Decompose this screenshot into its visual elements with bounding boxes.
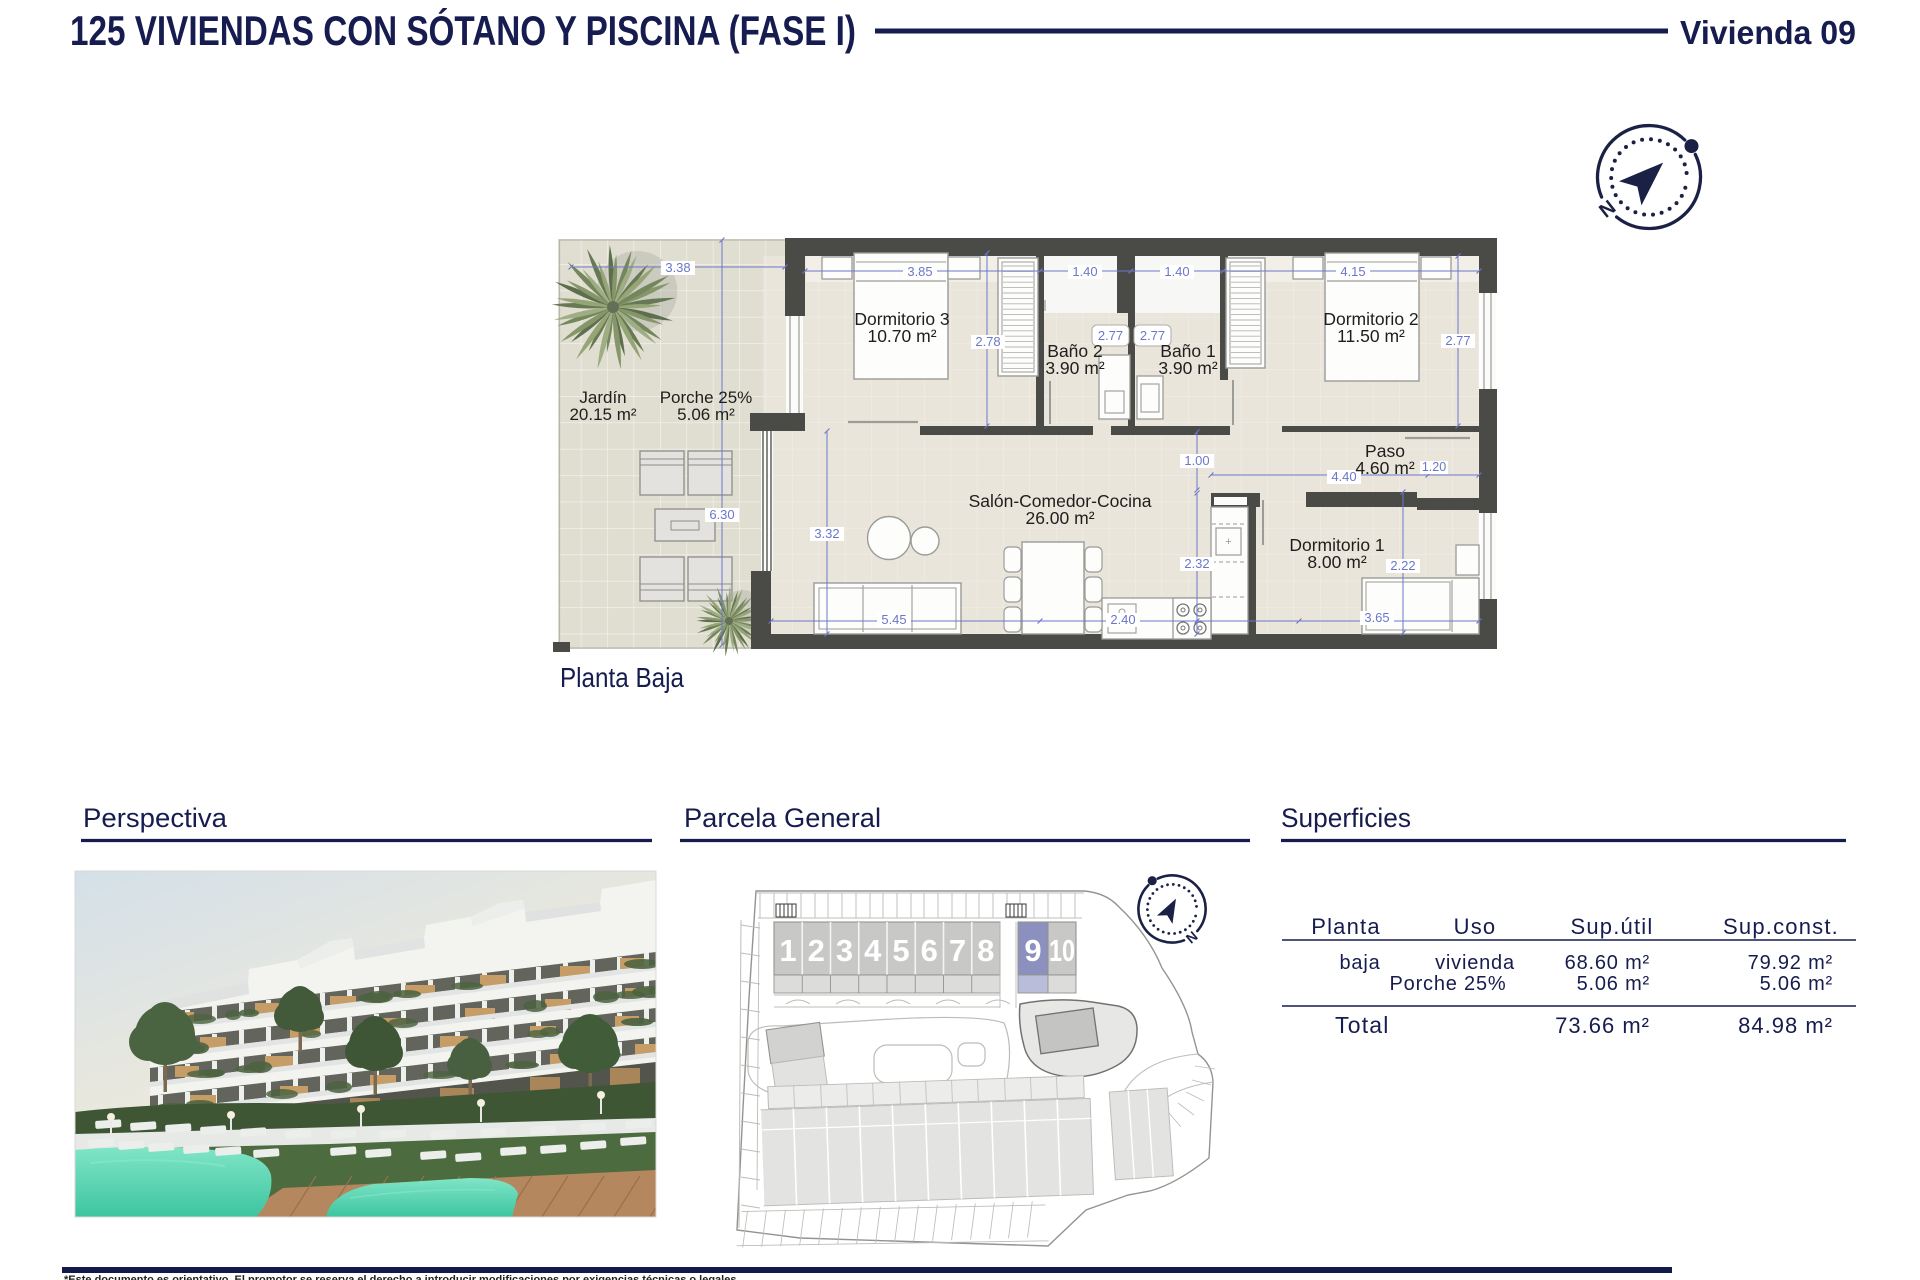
svg-text:Sup.const.: Sup.const. — [1723, 914, 1839, 939]
svg-text:Porche 25%: Porche 25% — [1390, 973, 1507, 995]
svg-text:Superficies: Superficies — [1281, 803, 1411, 833]
svg-text:2: 2 — [808, 933, 825, 968]
svg-text:2.77: 2.77 — [1445, 333, 1470, 348]
svg-text:1: 1 — [779, 933, 796, 968]
svg-text:10.70 m²: 10.70 m² — [867, 326, 936, 346]
svg-text:10: 10 — [1049, 933, 1075, 968]
svg-text:79.92 m²: 79.92 m² — [1748, 952, 1833, 974]
svg-text:+: + — [1225, 536, 1231, 548]
svg-text:3: 3 — [836, 933, 853, 968]
svg-text:84.98 m²: 84.98 m² — [1738, 1013, 1833, 1038]
svg-text:4.15: 4.15 — [1340, 264, 1365, 279]
svg-text:Planta Baja: Planta Baja — [560, 662, 684, 693]
svg-text:Uso: Uso — [1454, 914, 1497, 939]
svg-text:*Este documento es orientativo: *Este documento es orientativo. El promo… — [64, 1274, 736, 1280]
svg-text:7: 7 — [949, 933, 966, 968]
svg-text:1.20: 1.20 — [1422, 460, 1446, 474]
svg-text:Planta: Planta — [1311, 914, 1381, 939]
svg-text:9: 9 — [1024, 933, 1041, 968]
svg-text:4.60 m²: 4.60 m² — [1355, 458, 1414, 478]
svg-text:3.32: 3.32 — [814, 526, 839, 541]
svg-text:1.40: 1.40 — [1164, 264, 1189, 279]
svg-text:1.40: 1.40 — [1072, 264, 1097, 279]
svg-text:8.00 m²: 8.00 m² — [1307, 552, 1366, 572]
svg-text:2.40: 2.40 — [1110, 612, 1135, 627]
svg-text:2.78: 2.78 — [975, 334, 1000, 349]
svg-text:5.45: 5.45 — [881, 612, 906, 627]
svg-text:vivienda: vivienda — [1435, 952, 1515, 974]
svg-text:3.90 m²: 3.90 m² — [1158, 358, 1217, 378]
svg-text:11.50 m²: 11.50 m² — [1337, 326, 1405, 346]
svg-text:5.06 m²: 5.06 m² — [1577, 973, 1650, 995]
svg-text:baja: baja — [1339, 952, 1380, 974]
svg-text:Vivienda 09: Vivienda 09 — [1680, 14, 1856, 51]
svg-text:2.32: 2.32 — [1184, 556, 1209, 571]
svg-text:73.66 m²: 73.66 m² — [1555, 1013, 1650, 1038]
svg-text:Perspectiva: Perspectiva — [83, 803, 228, 833]
svg-text:68.60 m²: 68.60 m² — [1565, 952, 1650, 974]
svg-text:5: 5 — [892, 933, 909, 968]
svg-text:5.06 m²: 5.06 m² — [677, 405, 735, 424]
svg-text:3.85: 3.85 — [907, 264, 932, 279]
svg-text:4: 4 — [864, 933, 882, 968]
svg-text:3.65: 3.65 — [1364, 610, 1389, 625]
svg-text:Total: Total — [1335, 1012, 1390, 1038]
svg-text:5.06 m²: 5.06 m² — [1760, 973, 1833, 995]
svg-text:2.22: 2.22 — [1390, 558, 1415, 573]
svg-text:3.38: 3.38 — [665, 260, 690, 275]
svg-text:6.30: 6.30 — [709, 507, 734, 522]
svg-text:4.40: 4.40 — [1331, 469, 1356, 484]
svg-text:Parcela General: Parcela General — [684, 803, 881, 833]
svg-text:8: 8 — [977, 933, 994, 968]
svg-text:26.00 m²: 26.00 m² — [1025, 508, 1094, 528]
svg-text:20.15 m²: 20.15 m² — [569, 405, 636, 424]
svg-text:3.90 m²: 3.90 m² — [1045, 358, 1104, 378]
svg-text:1.00: 1.00 — [1184, 453, 1209, 468]
svg-text:6: 6 — [921, 933, 938, 968]
svg-text:Sup.útil: Sup.útil — [1571, 914, 1654, 939]
svg-text:125 VIVIENDAS CON SÓTANO Y PIS: 125 VIVIENDAS CON SÓTANO Y PISCINA (FASE… — [70, 6, 856, 54]
